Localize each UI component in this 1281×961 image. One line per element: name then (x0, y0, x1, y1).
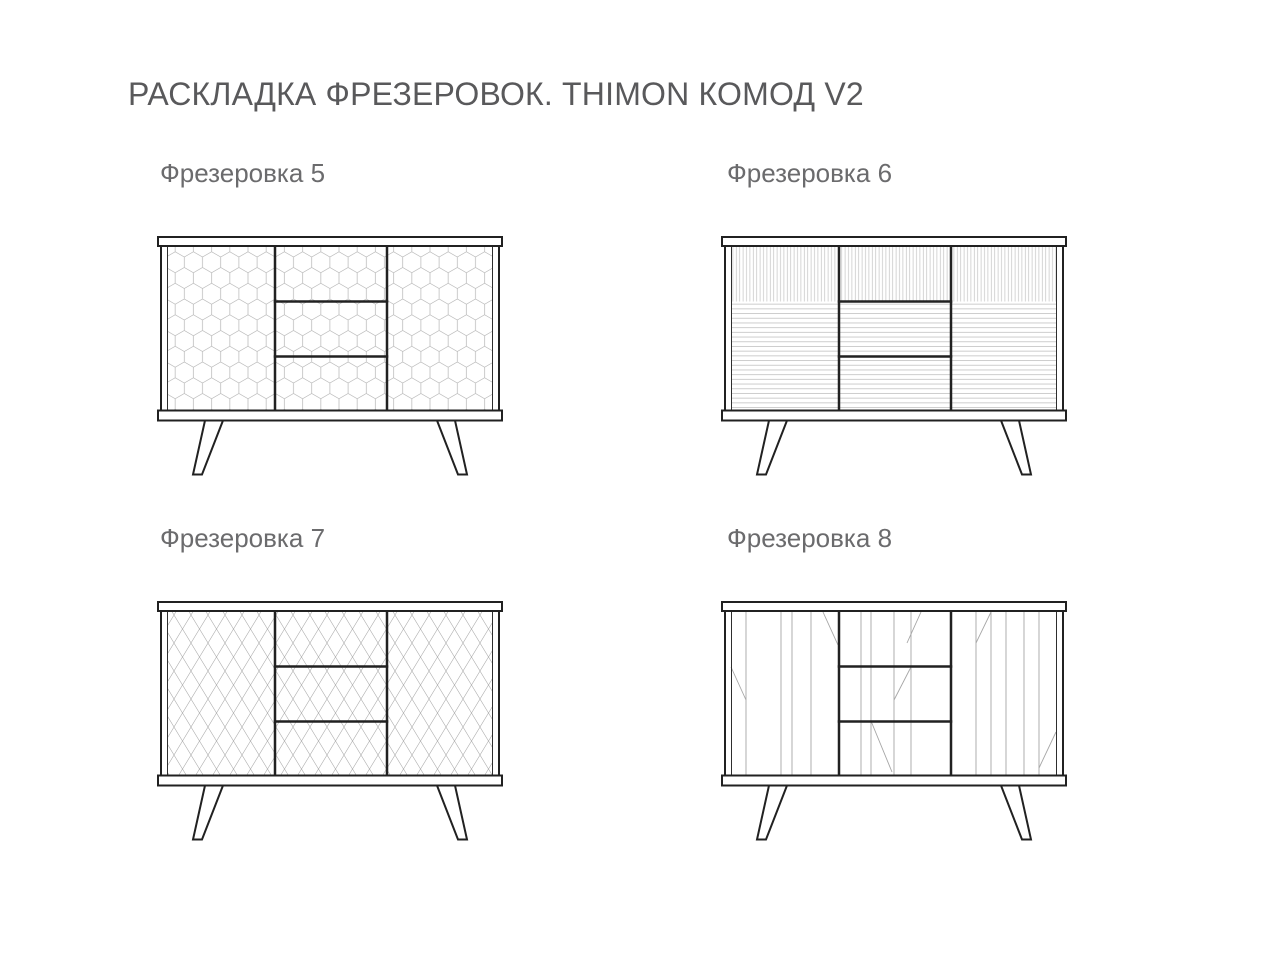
figure-label: Фрезеровка 8 (727, 523, 892, 554)
cabinet-drawing-ribs (721, 236, 1067, 476)
cabinet-drawing-branches (721, 601, 1067, 841)
figure-label: Фрезеровка 5 (160, 158, 325, 189)
cabinet-drawing-hexagons (157, 236, 503, 476)
milling-layout-page: РАСКЛАДКА ФРЕЗЕРОВОК. THIMON КОМОД V2 Фр… (0, 0, 1281, 961)
figure-label: Фрезеровка 6 (727, 158, 892, 189)
figure-frezerovka-7: Фрезеровка 7 (157, 601, 503, 841)
figure-frezerovka-6: Фрезеровка 6 (721, 236, 1067, 476)
figure-frezerovka-5: Фрезеровка 5 (157, 236, 503, 476)
figure-label: Фрезеровка 7 (160, 523, 325, 554)
figure-frezerovka-8: Фрезеровка 8 (721, 601, 1067, 841)
cabinet-drawing-diamonds (157, 601, 503, 841)
page-title: РАСКЛАДКА ФРЕЗЕРОВОК. THIMON КОМОД V2 (128, 76, 864, 113)
